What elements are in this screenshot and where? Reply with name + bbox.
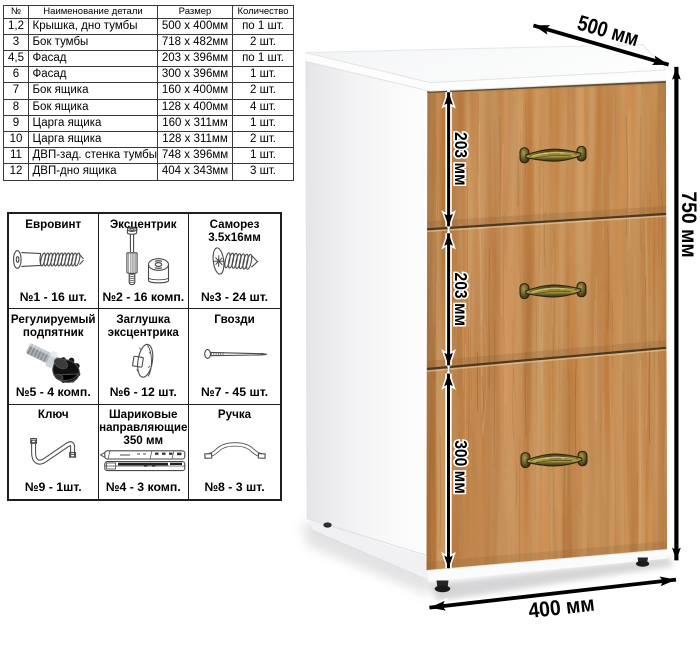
svg-text:203 мм: 203 мм xyxy=(451,272,471,326)
svg-text:203 мм: 203 мм xyxy=(451,132,471,186)
svg-text:300 мм: 300 мм xyxy=(451,440,471,494)
svg-text:750 мм: 750 мм xyxy=(677,191,700,257)
